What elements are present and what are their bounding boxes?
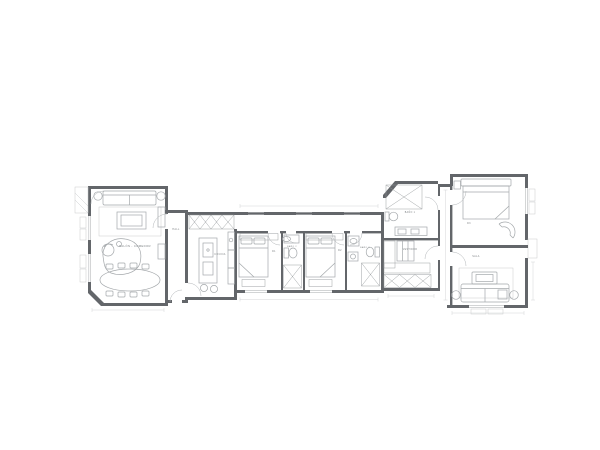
room-d2: D2: [306, 233, 344, 287]
window-sala: [469, 306, 504, 314]
toilet: [284, 248, 297, 258]
wall: [88, 186, 168, 189]
room-label-d2: D2: [338, 249, 342, 252]
door-arc: [452, 191, 466, 205]
bench: [309, 280, 332, 287]
double-sink: [395, 227, 427, 236]
tray-table: [498, 290, 507, 299]
room-bano3: BAÑO 3: [348, 233, 380, 286]
rug: [459, 268, 513, 298]
window-d3: [526, 188, 535, 214]
room-cocina: COCINA: [185, 212, 237, 300]
kitchen-cabinets: [228, 232, 235, 284]
room-d1: D1: [239, 233, 280, 287]
room-bano2: BAÑO 2: [283, 233, 302, 288]
room-bano1: BAÑO 1: [385, 185, 438, 236]
washer: [348, 252, 358, 261]
bed: [239, 236, 268, 277]
room-d3: D3: [452, 179, 515, 238]
side-table: [157, 192, 165, 200]
wardrobe: [306, 234, 343, 241]
wardrobe-unit: [397, 241, 414, 261]
sofa: [94, 191, 165, 205]
window-left-2: [80, 254, 90, 282]
room-label-d1: D1: [272, 250, 276, 253]
rug: [99, 207, 161, 236]
stool: [210, 285, 217, 292]
right-wing: BAÑO 1 VESTIDOR: [381, 174, 537, 314]
toilet: [385, 212, 398, 221]
door-arc: [425, 246, 438, 259]
kitchen-island: [199, 238, 218, 293]
chamfer-wall: [383, 181, 398, 198]
bed: [306, 236, 335, 277]
room-sala: SALA: [452, 252, 519, 302]
window-d2: [310, 291, 332, 293]
stool: [200, 284, 207, 291]
window-left-1: [80, 216, 90, 240]
room-label-salon-comedor: SALÓN - COMEDOR: [119, 243, 151, 248]
room-label-bano2: BAÑO 2: [287, 245, 297, 248]
room-label-vestidor: VESTIDOR: [403, 249, 418, 251]
room-label-cocina: COCINA: [214, 253, 225, 256]
wardrobe-rail: [384, 241, 395, 268]
dimension-lines: [92, 190, 535, 315]
room-label-bano3: BAÑO 3: [360, 246, 370, 249]
coffee-table: [117, 212, 146, 229]
window-d1: [245, 291, 267, 293]
middle-strip: D1 BAÑO 2: [237, 212, 384, 293]
window-bay: [528, 239, 537, 258]
room-vestidor: VESTIDOR: [384, 241, 438, 288]
door-arc: [425, 197, 438, 210]
room-label-hall: HALL: [172, 228, 180, 231]
floor-plan-page: SALÓN - COMEDOR HALL: [0, 0, 600, 450]
shower: [284, 265, 302, 288]
bed: [461, 179, 511, 219]
pantry-closet: [189, 215, 234, 229]
armchair: [499, 222, 515, 238]
bench: [242, 280, 265, 287]
door-arc: [188, 283, 201, 296]
door-arc: [452, 252, 466, 266]
tv-console: [158, 244, 165, 259]
coffee-table: [472, 272, 497, 284]
shower: [362, 263, 380, 286]
sofa: [452, 284, 519, 302]
room-salon-comedor: SALÓN - COMEDOR: [75, 186, 168, 306]
balcony: [75, 187, 88, 213]
wardrobe: [240, 234, 278, 241]
room-label-d3: D3: [467, 222, 471, 225]
nightstand: [454, 181, 461, 189]
door-arc: [332, 233, 344, 245]
wardrobe-boxes: [384, 275, 431, 288]
side-table: [94, 192, 102, 200]
floor-plan-drawing: SALÓN - COMEDOR HALL: [0, 0, 600, 450]
cabinet: [158, 207, 165, 227]
side-table: [510, 291, 519, 300]
shower: [386, 185, 422, 209]
room-label-sala: SALA: [472, 255, 480, 258]
dining-table: [100, 263, 160, 297]
room-label-bano1: BAÑO 1: [405, 211, 416, 214]
